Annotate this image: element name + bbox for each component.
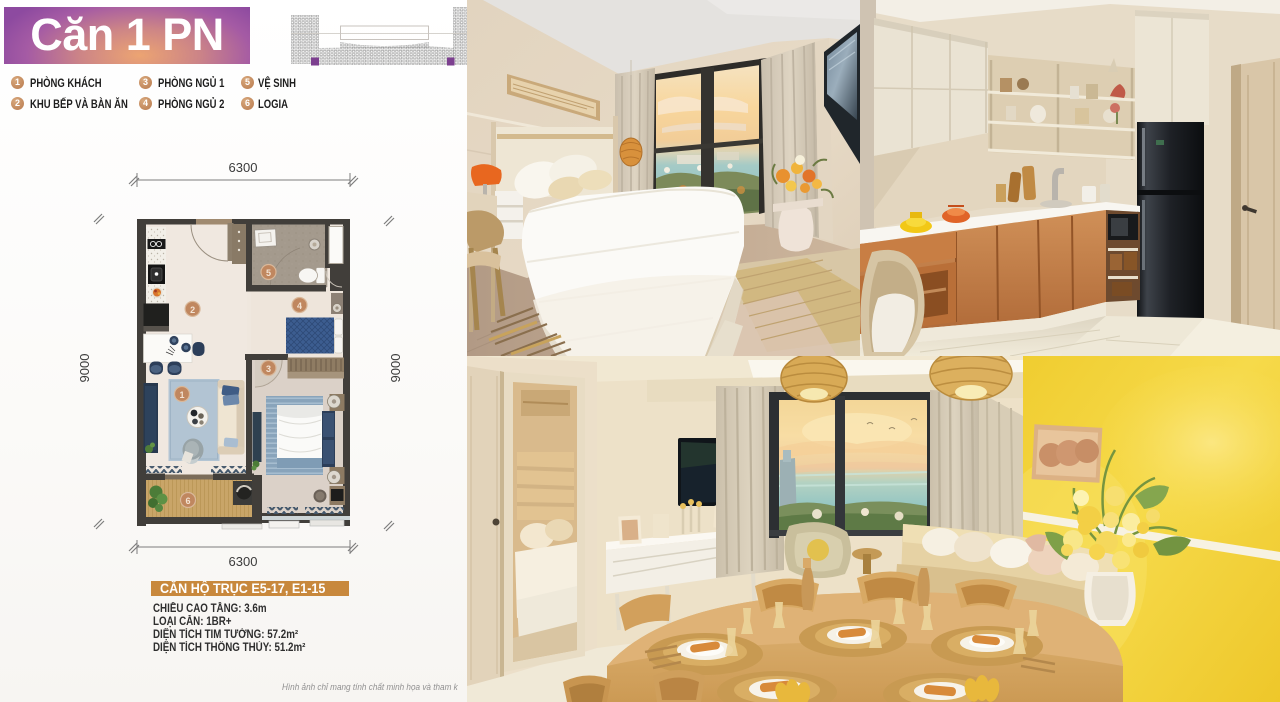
svg-text:9000: 9000 <box>77 354 92 383</box>
svg-text:4: 4 <box>297 301 302 311</box>
svg-text:1: 1 <box>179 390 184 400</box>
svg-text:3: 3 <box>266 364 271 374</box>
svg-text:2: 2 <box>190 305 195 315</box>
svg-text:5: 5 <box>266 268 271 278</box>
svg-text:9000: 9000 <box>388 354 403 383</box>
svg-text:6: 6 <box>185 496 190 506</box>
svg-text:6300: 6300 <box>229 554 258 569</box>
svg-text:6300: 6300 <box>229 160 258 175</box>
